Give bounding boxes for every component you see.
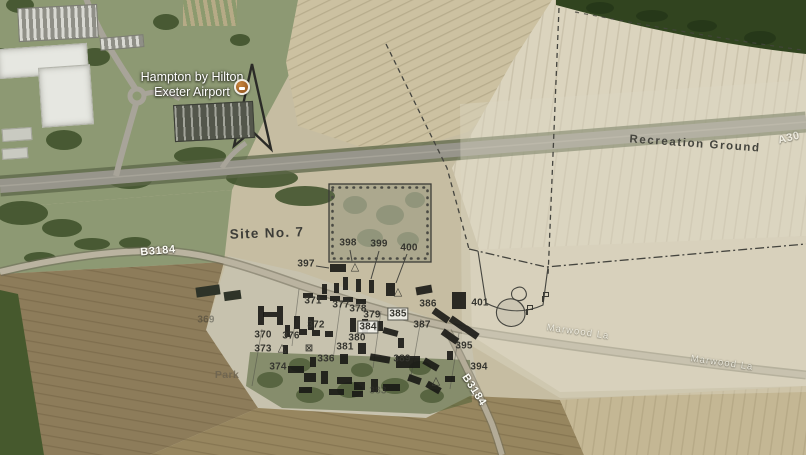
hotel-poi-label[interactable]: Hampton by Hilton Exeter Airport: [141, 70, 244, 100]
plan-building: [447, 351, 453, 360]
plan-building: [263, 312, 277, 317]
plan-building: [304, 373, 316, 382]
plan-building: [352, 391, 363, 397]
plan-building: [350, 318, 356, 332]
b3184-label-south: B3184: [459, 372, 488, 408]
bed-icon: [239, 87, 245, 90]
crossed-box-symbol: ⊠: [305, 344, 313, 354]
aerial-building: [173, 101, 255, 142]
building-number: 389: [393, 354, 410, 365]
plan-building: [369, 280, 374, 293]
building-number: 370: [254, 330, 271, 341]
aerial-building: [2, 127, 33, 142]
plan-building: [343, 277, 348, 290]
aerial-building: [100, 34, 145, 51]
flag-symbol: [543, 292, 549, 297]
building-number: 384: [358, 322, 377, 333]
plan-building: [330, 264, 346, 272]
triangle-symbol: △: [394, 287, 402, 297]
triangle-symbol: △: [432, 376, 440, 386]
building-number: 401: [471, 298, 488, 309]
satellite-map-view: △△△△⊠36937037137237337437637737837938038…: [0, 0, 806, 455]
aerial-building: [223, 290, 241, 301]
flag-symbol: [527, 305, 533, 310]
plan-building: [354, 382, 365, 390]
plan-building: [415, 285, 432, 296]
plan-building: [356, 279, 361, 292]
b3184-label-west: B3184: [140, 243, 176, 258]
building-number: 383: [369, 386, 386, 397]
building-number: 400: [400, 243, 417, 254]
plan-building: [337, 377, 352, 384]
aerial-building: [2, 147, 29, 160]
hotel-name-line2: Exeter Airport: [141, 85, 244, 100]
building-number: 397: [297, 259, 314, 270]
label-layer: △△△△⊠36937037137237337437637737837938038…: [0, 0, 806, 455]
plan-building: [407, 374, 422, 385]
building-number: 369: [197, 315, 214, 326]
plan-building: [299, 329, 307, 335]
plan-building: [370, 353, 391, 363]
building-number: 399: [370, 239, 387, 250]
building-number: 381: [336, 342, 353, 353]
aerial-building: [195, 284, 220, 297]
building-number: 395: [455, 341, 472, 352]
plan-building: [294, 316, 300, 329]
recreation-ground-label: Recreation Ground: [629, 133, 761, 154]
plan-building: [310, 357, 316, 367]
building-number: 385: [388, 309, 407, 320]
plan-building: [322, 284, 327, 294]
building-number: 379: [363, 310, 380, 321]
plan-building: [422, 357, 439, 371]
aerial-building: [17, 4, 99, 42]
site-no-7-label: Site No. 7: [230, 224, 305, 242]
park-label: Park: [215, 369, 239, 381]
plan-building: [452, 292, 466, 309]
aerial-building: [38, 64, 94, 127]
plan-building: [321, 371, 328, 384]
plan-building: [325, 331, 333, 337]
building-number: 374: [269, 362, 286, 373]
plan-building: [312, 330, 320, 336]
a30-label: A30: [777, 130, 801, 147]
building-number: 387: [413, 320, 430, 331]
building-number: 394: [470, 362, 487, 373]
plan-building: [340, 354, 348, 364]
building-number: 376: [282, 331, 299, 342]
plan-building: [398, 338, 404, 348]
building-number: 386: [419, 299, 436, 310]
plan-building: [463, 325, 479, 339]
plan-building: [288, 366, 304, 373]
building-number: 373: [254, 344, 271, 355]
plan-building: [358, 343, 366, 354]
building-number: 372: [307, 320, 324, 331]
plan-building: [382, 327, 398, 337]
hotel-name-line1: Hampton by Hilton: [141, 70, 244, 85]
plan-building: [277, 306, 283, 325]
plan-building: [299, 387, 312, 393]
marwood-lane-label-2: Marwood La: [690, 353, 754, 373]
triangle-symbol: △: [278, 343, 286, 353]
plan-building: [329, 389, 344, 395]
marwood-lane-label-1: Marwood La: [546, 322, 610, 342]
plan-building: [334, 283, 339, 293]
plan-building: [445, 376, 455, 382]
building-number: 377: [332, 300, 349, 311]
aerial-building: [183, 0, 237, 26]
building-number: 371: [304, 296, 321, 307]
triangle-symbol: △: [351, 262, 359, 272]
building-number: 336: [317, 354, 334, 365]
hotel-marker-icon[interactable]: [234, 79, 250, 95]
building-number: 398: [339, 238, 356, 249]
